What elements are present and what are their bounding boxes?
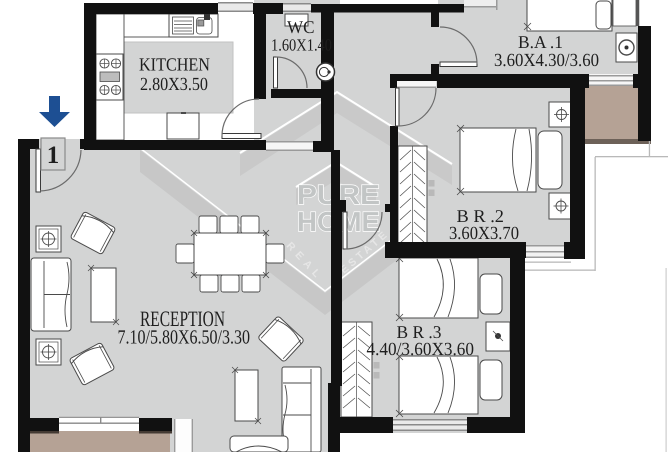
svg-text:1.60X1.40: 1.60X1.40 [271, 36, 332, 55]
svg-text:3.60X3.70: 3.60X3.70 [449, 224, 519, 244]
svg-text:B.A .1: B.A .1 [518, 32, 563, 52]
svg-text:1: 1 [47, 142, 60, 169]
svg-text:B R .3: B R .3 [397, 322, 442, 342]
svg-text:WC: WC [287, 17, 315, 37]
svg-text:7.10/5.80X6.50/3.30: 7.10/5.80X6.50/3.30 [118, 327, 251, 349]
svg-text:3.60X4.30/3.60: 3.60X4.30/3.60 [494, 51, 599, 71]
svg-text:2.80X3.50: 2.80X3.50 [140, 75, 208, 95]
svg-text:B R .2: B R .2 [457, 206, 505, 226]
svg-text:KITCHEN: KITCHEN [139, 56, 210, 76]
svg-text:4.40/3.60X3.60: 4.40/3.60X3.60 [367, 340, 475, 360]
